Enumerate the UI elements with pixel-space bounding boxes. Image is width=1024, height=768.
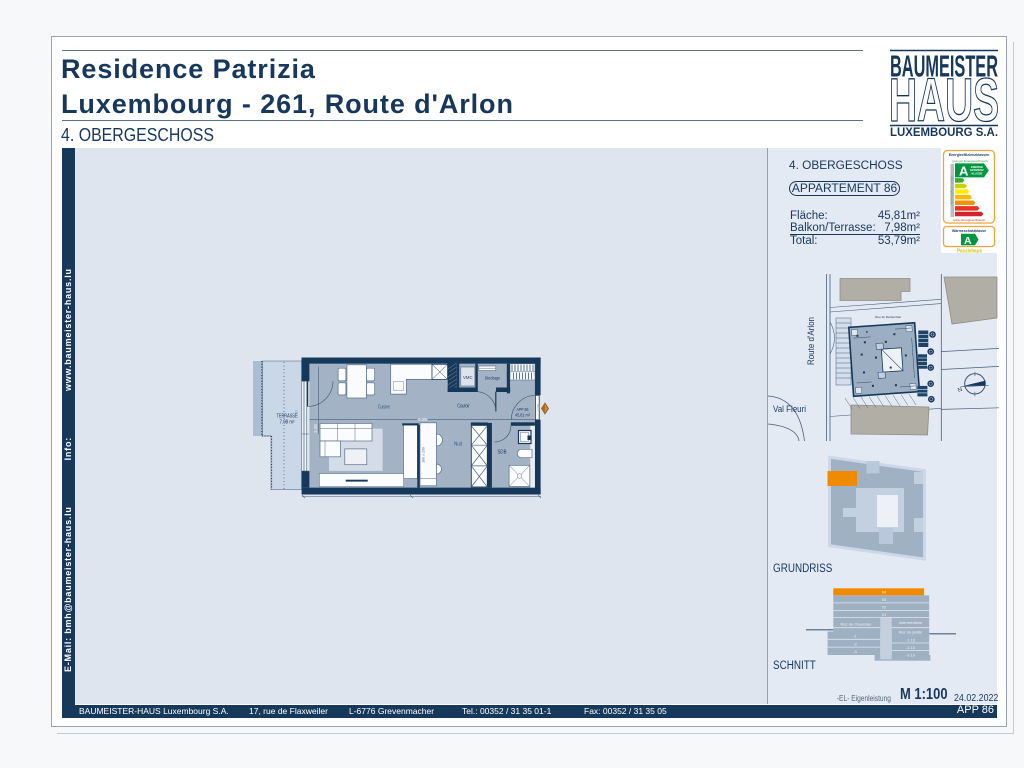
svg-text:WOHNGEBÄUDE KLASSE: WOHNGEBÄUDE KLASSE: [951, 175, 954, 205]
svg-text:3.06: 3.06: [313, 424, 318, 433]
svg-text:Rue de Reckenthal: Rue de Reckenthal: [875, 315, 901, 319]
svg-text:SDB: SDB: [498, 450, 508, 456]
svg-text:Energieeffizienzklassen: Energieeffizienzklassen: [949, 153, 990, 157]
svg-text:Rez de chaussée: Rez de chaussée: [841, 622, 873, 627]
svg-text:Route d'Arlon: Route d'Arlon: [806, 317, 816, 365]
svg-text:01: 01: [882, 612, 887, 617]
svg-text:Wärmeschutzklasse: Wärmeschutzklasse: [952, 229, 986, 233]
svg-text:Couloir: Couloir: [457, 404, 470, 410]
svg-text:04: 04: [882, 590, 887, 595]
svg-text:LUXEMBOURG S.A.: LUXEMBOURG S.A.: [890, 127, 998, 139]
svg-text:Passivhaus: Passivhaus: [957, 249, 982, 255]
svg-text:Cuisine: Cuisine: [378, 405, 391, 411]
svg-text:7,98 m²: 7,98 m²: [280, 420, 295, 426]
svg-text:Stockage: Stockage: [485, 376, 501, 381]
svg-text:A: A: [964, 235, 972, 247]
svg-text:02: 02: [882, 605, 887, 610]
svg-text:-2.10: -2.10: [906, 645, 916, 650]
svg-text:45,81 m²: 45,81 m²: [515, 413, 530, 418]
svg-text:KLASSE: KLASSE: [972, 171, 983, 175]
svg-text:APP 86: APP 86: [517, 407, 529, 412]
svg-text:HAUS: HAUS: [889, 66, 999, 134]
svg-text:-1.10: -1.10: [906, 638, 916, 643]
svg-text:180 x 200: 180 x 200: [422, 447, 426, 463]
svg-text:geringer Energieverbrauch: geringer Energieverbrauch: [952, 159, 988, 163]
svg-text:Intermédiaire: Intermédiaire: [899, 620, 923, 625]
svg-text:03: 03: [882, 597, 887, 602]
svg-text:Nuit: Nuit: [454, 442, 463, 448]
svg-text:Rez du jardin: Rez du jardin: [899, 630, 923, 635]
svg-text:Val Fleuri: Val Fleuri: [773, 404, 806, 414]
svg-text:hoher Energieverbrauch: hoher Energieverbrauch: [953, 218, 986, 222]
svg-text:3.25: 3.25: [418, 417, 427, 422]
svg-text:2.60: 2.60: [295, 410, 299, 417]
svg-text:A: A: [959, 163, 969, 178]
svg-text:VMC: VMC: [463, 375, 473, 380]
svg-text:N: N: [957, 387, 963, 394]
svg-text:0.93: 0.93: [536, 404, 540, 411]
svg-text:-3.10: -3.10: [906, 653, 916, 658]
